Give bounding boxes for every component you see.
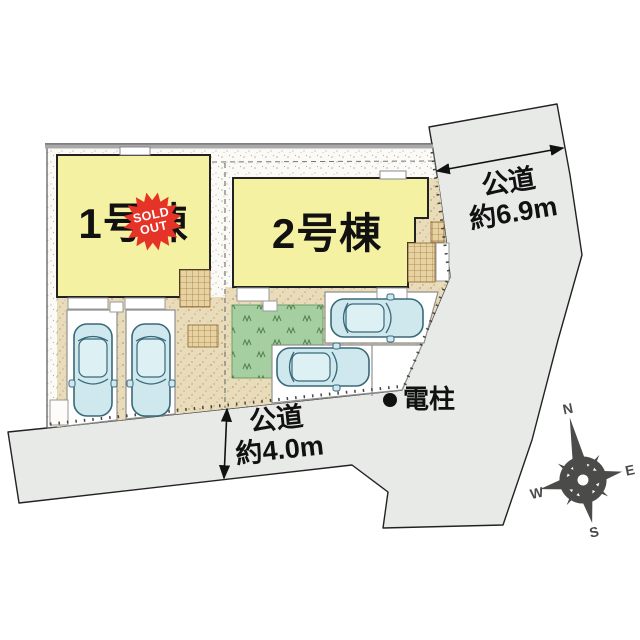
sold-out-badge-text: SOLD OUT: [132, 205, 173, 237]
bay-window: [120, 147, 150, 155]
car-icon: [127, 324, 175, 416]
entrance-approach-tiles: [431, 222, 444, 242]
building-2-label: 2号棟: [247, 212, 407, 256]
compass-east-label: E: [624, 461, 636, 479]
compass-west-label: W: [529, 484, 546, 503]
terrace-step: [110, 302, 123, 312]
terrace-step: [263, 301, 277, 311]
compass-needles: [527, 409, 632, 532]
compass-north-label: N: [561, 400, 574, 418]
compass-south-label: S: [588, 523, 600, 541]
utility-pole-label: 電柱: [403, 386, 455, 413]
bay-window: [380, 171, 406, 179]
entrance-approach-tiles: [180, 270, 210, 307]
car-icon: [69, 324, 117, 416]
site-plan-drawing: N E S W: [0, 0, 640, 640]
utility-pole-dot: [383, 393, 397, 407]
terrace-step: [237, 288, 269, 301]
terrace-step: [50, 400, 68, 425]
car-icon: [331, 294, 423, 342]
entrance-approach-tiles: [408, 243, 435, 282]
car-icon: [277, 343, 369, 391]
site-plan-canvas: N E S W 1号棟 2号棟 SOLD OUT 公道 約6.9m 公道 約4.…: [0, 0, 640, 640]
terrace-step: [68, 298, 108, 309]
terrace-step: [125, 298, 165, 309]
entrance-approach-tiles: [188, 325, 218, 347]
